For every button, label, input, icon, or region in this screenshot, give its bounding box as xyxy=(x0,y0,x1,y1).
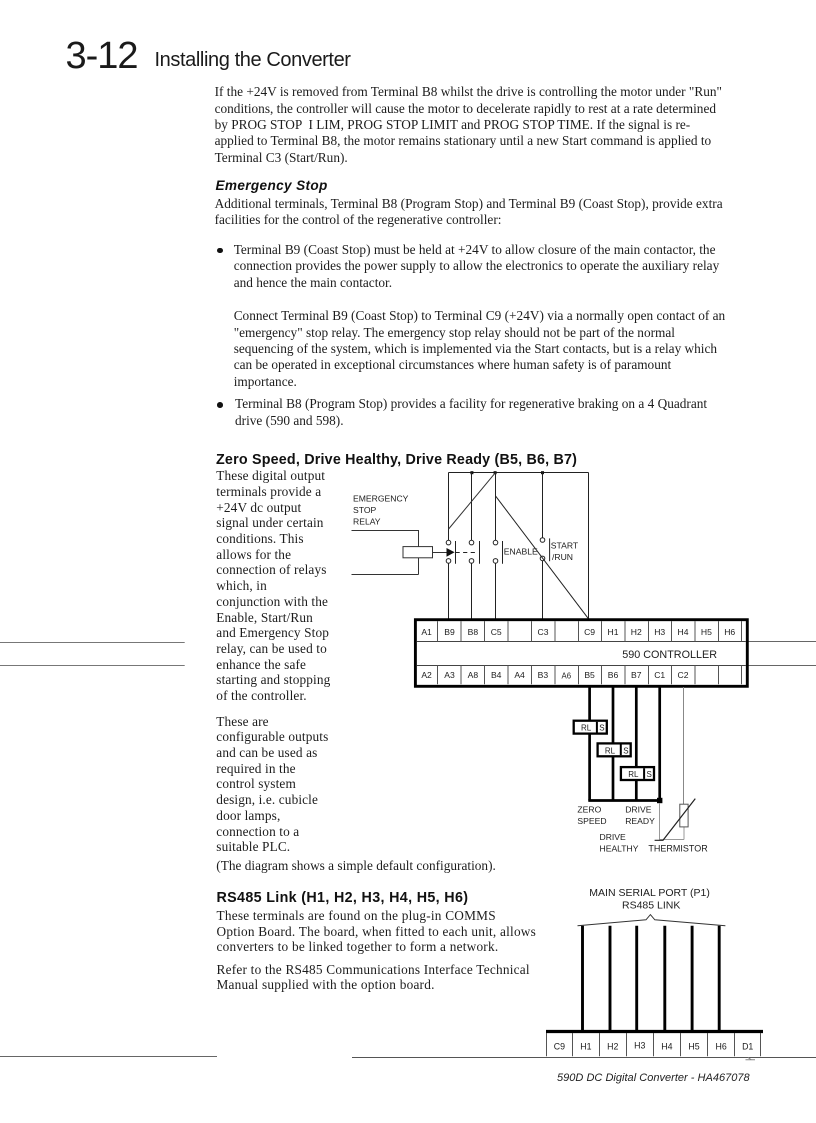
svg-text:B3: B3 xyxy=(538,670,549,680)
svg-text:/RUN: /RUN xyxy=(552,552,573,562)
svg-text:RL: RL xyxy=(605,746,616,755)
svg-text:RL: RL xyxy=(581,724,592,733)
svg-text:EMERGENCY: EMERGENCY xyxy=(353,493,409,503)
svg-text:A6: A6 xyxy=(562,672,572,681)
svg-text:B8: B8 xyxy=(468,627,479,637)
svg-text:HEALTHY: HEALTHY xyxy=(600,843,639,853)
svg-text:A4: A4 xyxy=(514,670,525,680)
svg-text:A3: A3 xyxy=(444,670,455,680)
svg-text:C3: C3 xyxy=(538,627,549,637)
svg-text:H4: H4 xyxy=(678,627,689,637)
svg-text:MAIN SERIAL PORT (P1): MAIN SERIAL PORT (P1) xyxy=(589,887,710,899)
svg-text:C2: C2 xyxy=(678,670,689,680)
svg-text:DRIVE: DRIVE xyxy=(625,804,652,814)
svg-text:H5: H5 xyxy=(701,627,712,637)
svg-text:THERMISTOR: THERMISTOR xyxy=(648,843,708,853)
svg-text:START: START xyxy=(551,540,579,550)
svg-text:590 CONTROLLER: 590 CONTROLLER xyxy=(622,649,717,661)
svg-text:H3: H3 xyxy=(634,1041,645,1051)
svg-text:H2: H2 xyxy=(607,1042,618,1052)
svg-text:H6: H6 xyxy=(715,1042,726,1052)
svg-text:STOP: STOP xyxy=(353,505,377,515)
svg-text:C1: C1 xyxy=(654,670,665,680)
svg-text:ENABLE: ENABLE xyxy=(504,547,538,557)
svg-text:A2: A2 xyxy=(421,670,432,680)
svg-text:H2: H2 xyxy=(631,627,642,637)
svg-text:B6: B6 xyxy=(608,670,619,680)
svg-text:H1: H1 xyxy=(608,627,619,637)
svg-text:A1: A1 xyxy=(421,627,432,637)
svg-text:A8: A8 xyxy=(468,670,479,680)
svg-text:H1: H1 xyxy=(580,1042,591,1052)
svg-text:RS485 LINK: RS485 LINK xyxy=(622,900,680,912)
svg-text:SPEED: SPEED xyxy=(577,816,606,826)
svg-text:RELAY: RELAY xyxy=(353,516,381,526)
svg-text:H5: H5 xyxy=(688,1042,699,1052)
svg-text:READY: READY xyxy=(625,816,655,826)
svg-text:B4: B4 xyxy=(491,670,502,680)
svg-text:B5: B5 xyxy=(584,670,595,680)
svg-text:H4: H4 xyxy=(661,1042,672,1052)
svg-text:H3: H3 xyxy=(654,627,665,637)
svg-text:D1: D1 xyxy=(742,1042,753,1052)
svg-text:B9: B9 xyxy=(444,627,455,637)
svg-text:S: S xyxy=(599,724,604,733)
svg-text:ZERO: ZERO xyxy=(577,804,601,814)
svg-text:S: S xyxy=(647,770,652,779)
svg-text:C5: C5 xyxy=(491,627,502,637)
svg-text:H6: H6 xyxy=(724,627,735,637)
svg-text:DRIVE: DRIVE xyxy=(600,832,627,842)
svg-text:RL: RL xyxy=(628,770,639,779)
svg-text:B7: B7 xyxy=(631,670,642,680)
svg-text:C9: C9 xyxy=(584,627,595,637)
svg-text:C9: C9 xyxy=(554,1042,565,1052)
svg-text:S: S xyxy=(623,746,628,755)
